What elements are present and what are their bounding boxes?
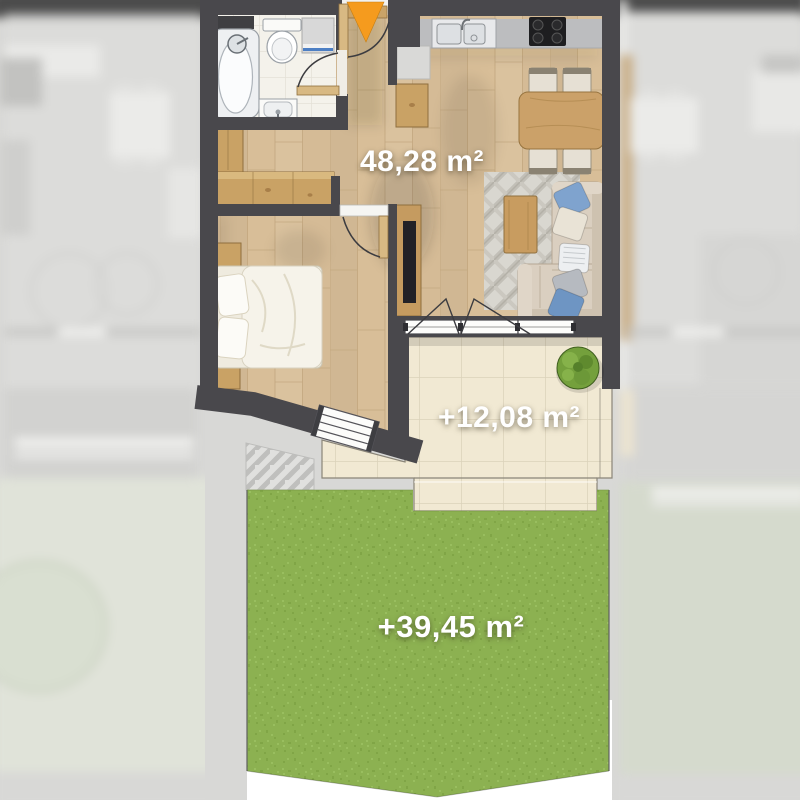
entrance-door-leaf (339, 4, 348, 58)
bed-pillow (215, 317, 249, 360)
floor-plan-svg: 48,28 m² +12,08 m² +39,45 m² (0, 0, 800, 800)
bed-pillow (214, 273, 249, 317)
bed (214, 266, 322, 368)
garden-area-label: +39,45 m² (378, 609, 525, 644)
bedroom-threshold (340, 205, 388, 216)
kitchen-tall-cabinet (397, 46, 430, 79)
kitchen-sink (432, 19, 496, 48)
coffee-table (504, 196, 537, 253)
bathroom-shelf (213, 16, 254, 29)
bedroom-door-leaf (379, 216, 388, 258)
bathtub (212, 29, 259, 118)
terrace-area-label: +12,08 m² (438, 401, 580, 434)
cooktop (529, 17, 566, 46)
floor-plan-canvas: 48,28 m² +12,08 m² +39,45 m² (0, 0, 800, 800)
apartment-area-label: 48,28 m² (360, 145, 484, 178)
dining-table (519, 92, 604, 149)
bathroom-door-leaf (297, 86, 339, 95)
tv-screen (403, 221, 416, 303)
washing-machine (302, 18, 334, 53)
hatched-area (246, 443, 314, 490)
